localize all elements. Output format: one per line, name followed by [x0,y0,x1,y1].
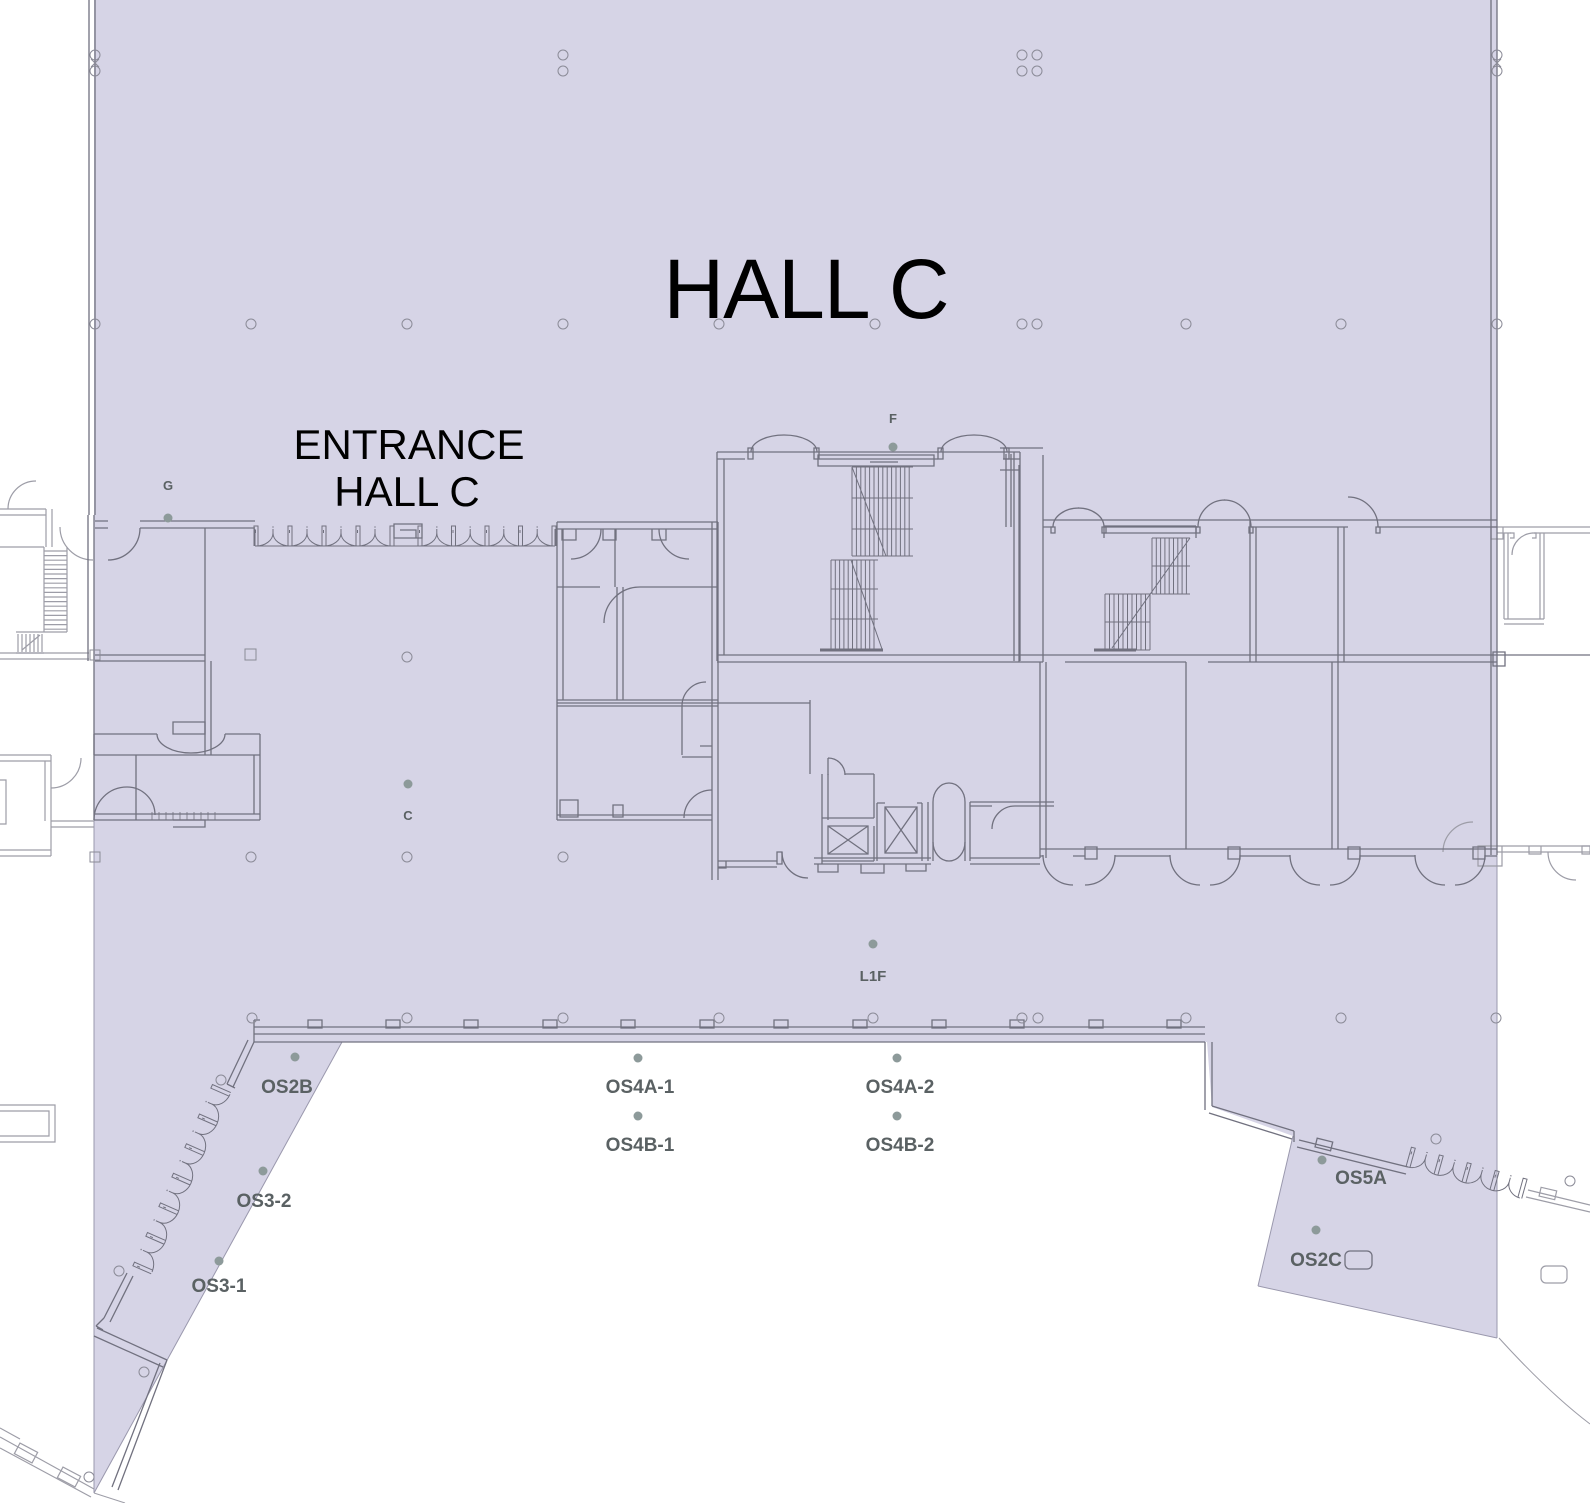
svg-text:HALL C: HALL C [663,242,948,336]
svg-text:OS2C: OS2C [1290,1250,1342,1271]
svg-text:OS4A-2: OS4A-2 [866,1077,935,1098]
svg-text:ENTRANCE: ENTRANCE [293,421,524,468]
svg-text:OS4B-2: OS4B-2 [866,1135,935,1156]
svg-text:OS3-2: OS3-2 [237,1191,292,1212]
svg-text:OS5A: OS5A [1335,1168,1387,1189]
svg-text:OS4A-1: OS4A-1 [606,1077,675,1098]
svg-text:OS4B-1: OS4B-1 [606,1135,675,1156]
svg-text:OS2B: OS2B [261,1077,313,1098]
svg-text:G: G [163,478,173,493]
svg-text:HALL C: HALL C [334,468,480,515]
svg-text:F: F [889,411,897,426]
svg-text:C: C [403,808,413,823]
svg-text:OS3-1: OS3-1 [192,1276,247,1297]
svg-text:L1F: L1F [860,968,887,985]
